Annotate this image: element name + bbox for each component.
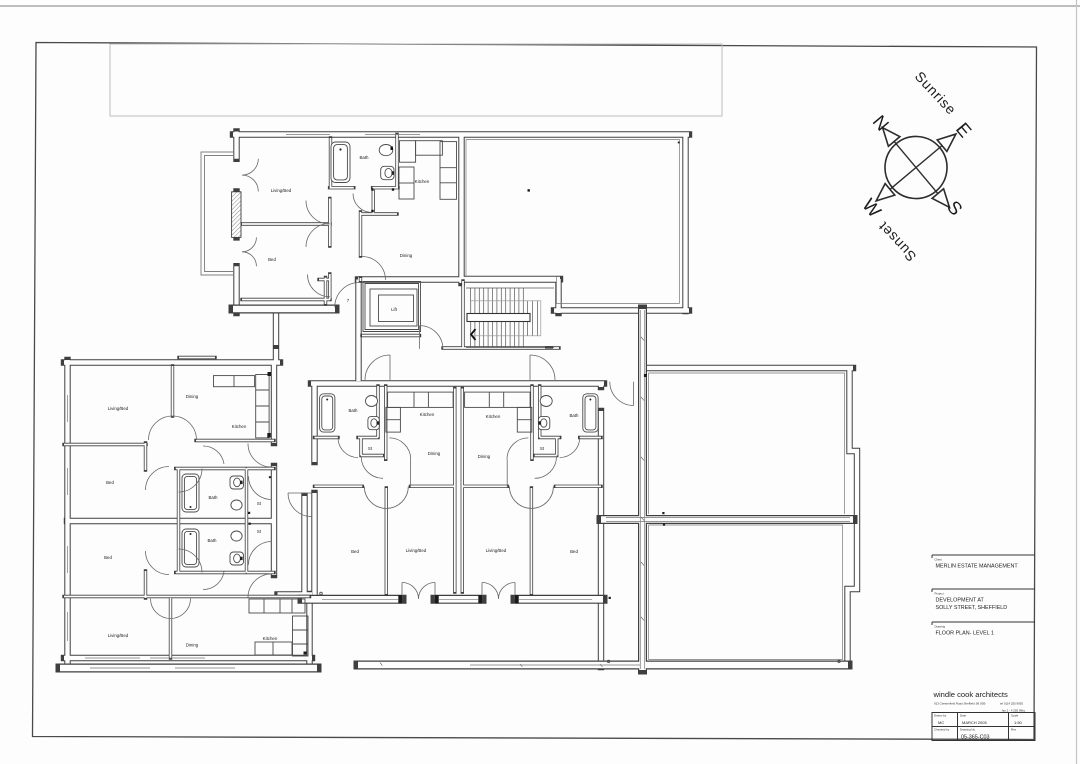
- svg-text:Bath: Bath: [348, 408, 358, 413]
- svg-text:7: 7: [347, 298, 350, 303]
- svg-text:Sunrise: Sunrise: [912, 68, 960, 118]
- svg-text:MC: MC: [938, 720, 944, 725]
- svg-text:Bed: Bed: [268, 257, 276, 262]
- svg-text:E: E: [952, 118, 976, 141]
- svg-text:Bath: Bath: [569, 413, 579, 418]
- svg-text:Drawing: Drawing: [935, 625, 946, 629]
- svg-text:Kitchen: Kitchen: [486, 414, 501, 419]
- svg-text:Kitchen: Kitchen: [232, 424, 247, 429]
- svg-text:Living/Bed: Living/Bed: [486, 548, 507, 553]
- svg-text:Scale: Scale: [1011, 714, 1019, 718]
- svg-text:Drawing No.: Drawing No.: [960, 728, 976, 732]
- svg-text:Kitchen: Kitchen: [415, 179, 430, 184]
- svg-text:fax 2 - 4 255 99bc: fax 2 - 4 255 99bc: [1002, 709, 1026, 713]
- svg-text:Dining: Dining: [400, 253, 413, 258]
- svg-text:Kitchen: Kitchen: [420, 412, 435, 417]
- svg-text:FLOOR PLAN- LEVEL 1: FLOOR PLAN- LEVEL 1: [936, 631, 995, 637]
- svg-text:Bed: Bed: [570, 549, 578, 554]
- svg-text:Bed: Bed: [106, 480, 114, 485]
- svg-text:Project: Project: [935, 592, 944, 596]
- svg-text:1:50: 1:50: [1014, 720, 1023, 725]
- svg-text:Living/Bed: Living/Bed: [108, 406, 129, 411]
- svg-text:Bath: Bath: [208, 495, 218, 500]
- svg-text:Bed: Bed: [104, 555, 112, 560]
- svg-text:St: St: [540, 446, 545, 451]
- svg-text:Kitchen: Kitchen: [263, 636, 278, 641]
- svg-text:tel 0114 255 9955: tel 0114 255 9955: [1000, 702, 1023, 706]
- svg-text:Living/Bed: Living/Bed: [271, 188, 292, 193]
- svg-text:Client: Client: [935, 558, 943, 562]
- svg-text:Bed: Bed: [351, 549, 359, 554]
- svg-text:05-365-C03: 05-365-C03: [961, 735, 989, 741]
- svg-text:St: St: [368, 446, 373, 451]
- svg-text:Drawn by: Drawn by: [934, 714, 947, 718]
- svg-text:SOLLY STREET, SHEFFIELD: SOLLY STREET, SHEFFIELD: [936, 605, 1008, 611]
- svg-text:Living/Bed: Living/Bed: [108, 633, 129, 638]
- svg-text:Sunset: Sunset: [874, 219, 919, 265]
- svg-text:Dining: Dining: [478, 454, 491, 459]
- svg-text:Bath: Bath: [207, 538, 217, 543]
- svg-text:Checked by: Checked by: [934, 728, 950, 732]
- svg-text:St: St: [257, 501, 262, 506]
- svg-text:Date: Date: [960, 714, 966, 718]
- svg-text:Dining: Dining: [428, 451, 441, 456]
- svg-text:Lift: Lift: [391, 307, 398, 312]
- svg-text:Living/Bed: Living/Bed: [406, 548, 427, 553]
- svg-text:MERLIN ESTATE MANAGEMENT: MERLIN ESTATE MANAGEMENT: [936, 564, 1019, 570]
- svg-text:MARCH 2005: MARCH 2005: [962, 720, 987, 725]
- svg-text:Bath: Bath: [359, 155, 369, 160]
- svg-text:Rev: Rev: [1011, 728, 1017, 732]
- svg-text:St: St: [257, 529, 262, 534]
- svg-text:DEVELOPMENT AT: DEVELOPMENT AT: [936, 598, 985, 604]
- svg-text:Dining: Dining: [186, 643, 199, 648]
- svg-text:windle cook architects: windle cook architects: [933, 690, 1008, 699]
- svg-text:913 Chesterfield Road Sheffi: 913 Chesterfield Road Sheffield S8 0SB: [934, 702, 985, 706]
- svg-text:Dining: Dining: [186, 394, 199, 399]
